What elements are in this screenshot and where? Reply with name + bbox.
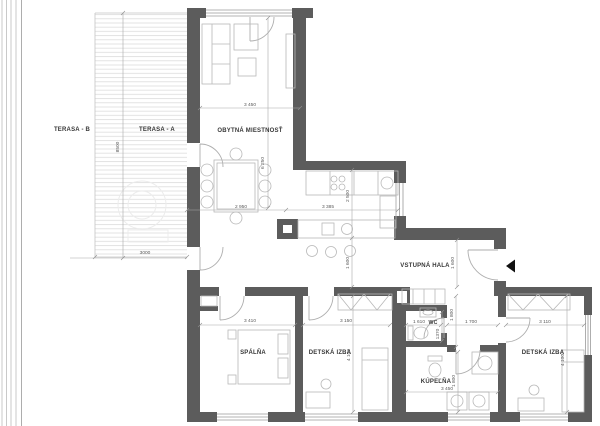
dim-terrace-depth: 8500: [115, 141, 121, 152]
dim-hall-right: 1 600: [450, 257, 456, 269]
floor-plan-drawing: 3 450 2 950 3 385 6 250 2 500 1 600 1 60…: [0, 0, 600, 426]
dim-terrace-width: 3000: [140, 250, 151, 256]
dim-living-width: 3 450: [244, 102, 256, 108]
dim-kitchen-depth: 2 500: [345, 190, 351, 202]
floor-plan: 3 450 2 950 3 385 6 250 2 500 1 600 1 60…: [0, 0, 600, 426]
column-inner: [283, 225, 292, 233]
room-label-detska-izba-2: DETSKÁ IZBA: [522, 349, 565, 356]
dim-corridor-width: 1 700: [465, 319, 477, 325]
dim-kupelna-depth: 1 800: [451, 375, 457, 387]
dim-detska2-width: 3 110: [539, 319, 551, 325]
room-label-spalna: SPÁLŇA: [240, 348, 266, 356]
dim-wc-depth: 1370: [435, 328, 441, 339]
room-label-kupelna: KÚPEĽŇA: [421, 377, 452, 385]
room-label-terasa-a: TERASA - A: [139, 127, 175, 133]
dim-living-depth: 6 250: [260, 157, 266, 169]
dim-wc-width: 1 610: [413, 319, 425, 325]
room-label-obytna-miestnost: OBYTNÁ MIESTNOSŤ: [217, 126, 282, 134]
dim-detska1-width: 3 150: [340, 318, 352, 324]
dim-spalna-width: 3 410: [244, 318, 256, 324]
facade-lines: [2, 0, 22, 426]
entrance-arrow-icon: [506, 260, 515, 273]
room-label-terasa-b: TERASA - B: [54, 127, 91, 133]
dim-hall-left: 1 600: [345, 257, 351, 269]
dim-kitchen-width: 3 385: [322, 204, 334, 210]
room-label-wc: WC: [428, 320, 437, 326]
room-label-vstupna-hala: VSTUPNÁ HALA: [400, 262, 450, 269]
room-label-detska-izba-1: DETSKÁ IZBA: [309, 349, 352, 356]
walls: [187, 8, 592, 422]
terrace-deck: [70, 13, 187, 258]
dim-dining-width: 2 950: [235, 204, 247, 210]
dim-wc-height: 1 800: [449, 309, 455, 321]
